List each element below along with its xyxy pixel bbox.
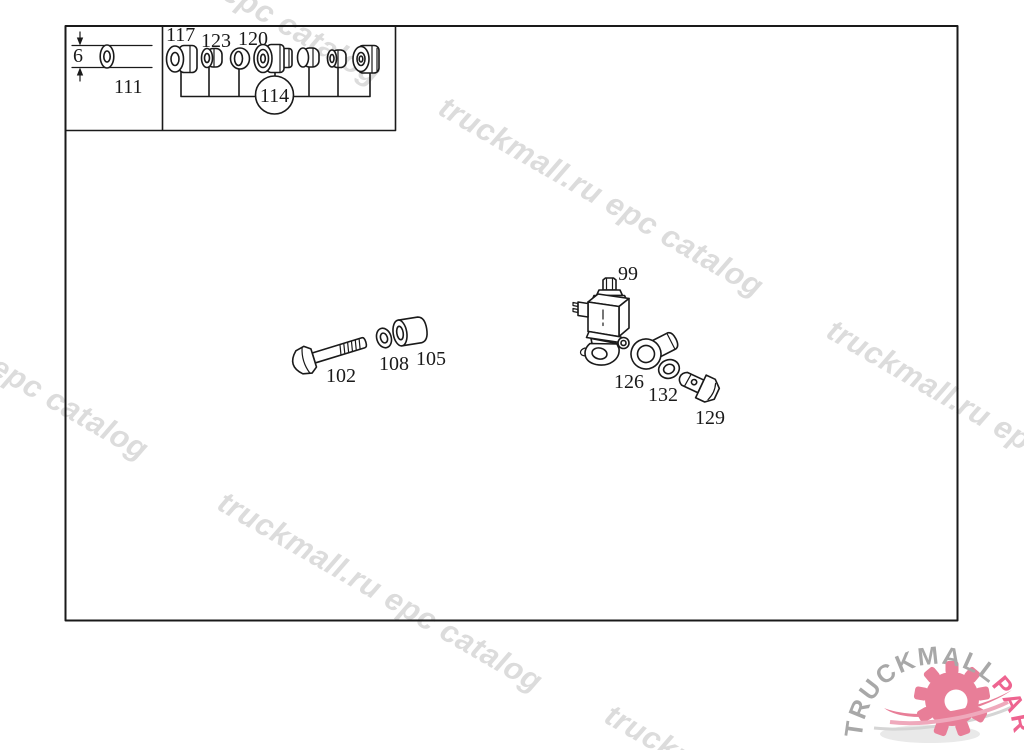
part-label-111: 111 (114, 77, 143, 97)
part-label-108: 108 (379, 354, 409, 374)
truckmall-logo: TRUCKMALLPARTS (0, 0, 1024, 743)
fitting-120 (231, 48, 250, 69)
valve-side-ring (618, 338, 629, 349)
part-label-132: 132 (648, 385, 678, 405)
part-label-117: 117 (166, 25, 195, 45)
inset-sleeve-111-drawing (72, 32, 152, 81)
fitting-stepped (328, 50, 347, 68)
part-label-123: 123 (201, 31, 231, 51)
part-label-120: 120 (238, 29, 268, 49)
plug-129-drawing (675, 365, 722, 405)
fitting-cylinder (298, 48, 320, 67)
part-label-129: 129 (695, 408, 725, 428)
diagram-frame (66, 26, 958, 621)
part-label-99: 99 (618, 264, 638, 284)
spacer-105-drawing (391, 316, 428, 347)
parts-catalog-page: truckmall.ru epc catalog truckmall.ru ep… (0, 0, 1024, 750)
part-label-114: 114 (255, 86, 294, 106)
part-label-126: 126 (614, 372, 644, 392)
washer-108-drawing (374, 326, 394, 349)
valve-connector-tab (578, 302, 588, 317)
dim-label-6: 6 (73, 46, 83, 66)
diagram-canvas: TRUCKMALLPARTS (0, 0, 1024, 750)
part-label-105: 105 (416, 349, 446, 369)
valve-99-drawing (573, 278, 629, 365)
part-label-102: 102 (326, 366, 356, 386)
logo-arc-text: TRUCKMALLPARTS (0, 0, 1024, 739)
dim-arrow-up-icon (77, 68, 83, 76)
logo-suffix-text: PARTS (0, 0, 1024, 737)
fitting-117 (167, 46, 198, 73)
fitting-nut-right (353, 46, 379, 74)
